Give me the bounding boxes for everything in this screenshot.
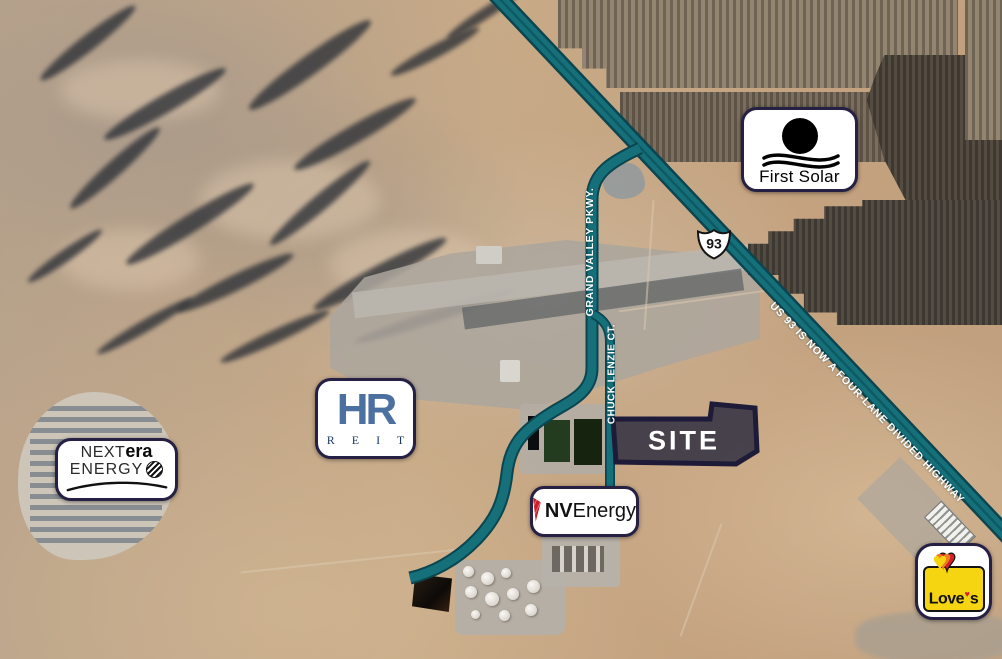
first-solar-label: First Solar <box>759 167 840 187</box>
nv-energy-word: Energy <box>573 500 636 522</box>
nv-energy-sign: NVEnergy <box>530 486 639 537</box>
nextera-era: era <box>125 443 152 460</box>
roads-overlay <box>0 0 1002 659</box>
svg-text:93: 93 <box>706 236 722 252</box>
aerial-site-map: GRAND VALLEY PKWY. CHUCK LENZIE CT. US 9… <box>0 0 1002 659</box>
nv-energy-arrow-icon <box>533 498 541 522</box>
us-route-shield: 93 <box>696 228 732 260</box>
hr-reit-sign: HR R E I T <box>315 378 416 459</box>
hr-monogram: HR <box>337 390 395 430</box>
nextera-swoosh-icon <box>61 479 173 492</box>
loves-label: Love♥s <box>929 585 979 609</box>
nextera-energy-sign: NEXTera ENERGY <box>55 438 178 501</box>
us93-highway <box>482 0 1002 560</box>
nextera-next: NEXT <box>81 444 126 461</box>
nextera-energy-word: ENERGY <box>70 461 144 478</box>
nv-bold: NV <box>545 500 573 522</box>
loves-apostrophe-heart-icon: ♥ <box>965 589 970 599</box>
hr-reit-label: R E I T <box>327 433 411 448</box>
grand-valley-pkwy-label: GRAND VALLEY PKWY. <box>584 188 596 317</box>
loves-sign: ♥ ♥ ♥ Love♥s <box>915 543 992 620</box>
chuck-lenzie-ct-label: CHUCK LENZIE CT. <box>607 324 618 424</box>
nextera-globe-icon <box>146 461 163 478</box>
loves-yellow-box: ♥ ♥ ♥ Love♥s <box>923 566 985 612</box>
site-label: SITE <box>648 426 720 457</box>
first-solar-sign: First Solar <box>741 107 858 192</box>
first-solar-sun-waves-icon <box>754 117 846 169</box>
